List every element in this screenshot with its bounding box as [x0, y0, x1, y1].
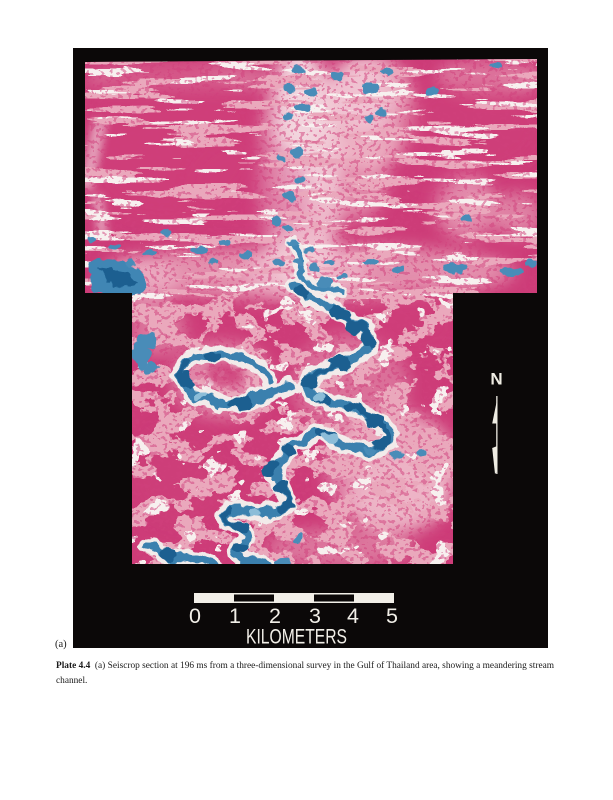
- svg-text:KILOMETERS: KILOMETERS: [246, 626, 347, 649]
- svg-text:4: 4: [347, 604, 359, 628]
- svg-text:3: 3: [309, 604, 321, 628]
- svg-text:N: N: [490, 370, 502, 389]
- svg-text:1: 1: [229, 604, 241, 628]
- svg-text:0: 0: [189, 604, 201, 628]
- svg-text:2: 2: [269, 604, 281, 628]
- svg-text:5: 5: [386, 604, 398, 628]
